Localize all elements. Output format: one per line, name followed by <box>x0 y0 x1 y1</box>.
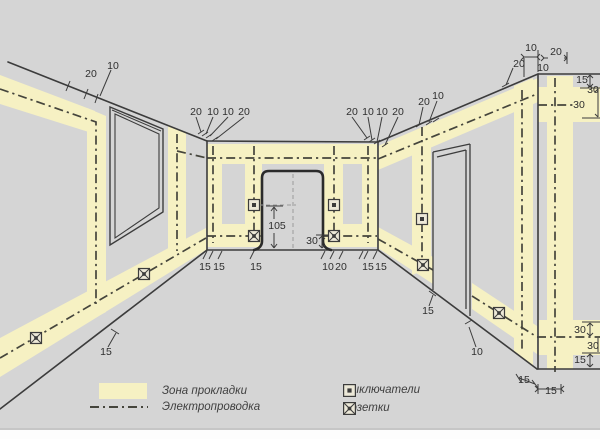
socket-icon <box>418 260 429 271</box>
dimension-label: 10 <box>362 106 374 118</box>
dimension-tick <box>339 251 343 259</box>
dimension-label: 20 <box>238 106 250 118</box>
dimension-tick <box>521 54 524 57</box>
dimension-label: 10 <box>537 62 549 74</box>
dimension-tick <box>218 251 222 259</box>
dimension-label: 10 <box>207 106 219 118</box>
dimension-tick <box>196 117 201 132</box>
dimension-label: 30 <box>573 99 585 111</box>
right-doorway-edge <box>437 150 466 157</box>
socket-icon <box>329 231 340 242</box>
dimension-label: 30 <box>587 84 599 96</box>
switch-icon <box>249 200 260 211</box>
socket-icon <box>139 269 150 280</box>
socket-icon <box>31 333 42 344</box>
socket-icon <box>249 231 260 242</box>
window-frame-outer <box>110 107 163 245</box>
legend-item-sockets: Розетки <box>343 402 390 414</box>
dimension-tick <box>352 117 367 138</box>
wiring-zone <box>362 144 377 247</box>
wiring-zone <box>0 75 95 134</box>
dimension-tick <box>359 251 363 259</box>
dimension-tick <box>541 58 544 61</box>
footer-strip <box>0 428 600 439</box>
dimension-label: 20 <box>85 68 97 80</box>
dimension-tick <box>206 117 213 134</box>
dimension-label: 10 <box>376 106 388 118</box>
dimension-label: 20 <box>418 96 430 108</box>
dimension-tick <box>202 132 208 136</box>
dimension-tick <box>95 94 98 103</box>
dimension-tick <box>250 251 254 259</box>
dimension-label: 15 <box>213 261 225 273</box>
dimension-label: 105 <box>268 220 286 232</box>
dimension-label: 10 <box>432 90 444 102</box>
wiring-zone <box>514 78 533 366</box>
dimension-label: 20 <box>392 106 404 118</box>
legend-zone-label: Зона прокладки <box>162 385 247 397</box>
dimension-label: 15 <box>362 261 374 273</box>
dimension-label: 10 <box>107 60 119 72</box>
diagram-canvas: 2010201010202010102020102010201015303015… <box>0 0 600 439</box>
dimension-tick <box>469 327 476 347</box>
switch-icon <box>329 200 340 211</box>
dimension-label: 30 <box>587 340 599 352</box>
dimension-tick <box>216 117 244 139</box>
dimension-tick <box>330 251 334 259</box>
dimension-tick <box>210 117 228 136</box>
wall-edge <box>207 141 378 142</box>
legend-wiring-label: Электропроводка <box>162 401 260 413</box>
dimension-tick <box>541 55 544 58</box>
dimension-label: 20 <box>190 106 202 118</box>
dimension-label: 10 <box>525 42 537 54</box>
dimension-label: 10 <box>471 346 483 358</box>
dimension-label: 20 <box>346 106 358 118</box>
wiring-zone <box>547 76 573 369</box>
dimension-tick <box>373 251 377 259</box>
dimension-label: 15 <box>375 261 387 273</box>
dimension-label: 30 <box>574 324 586 336</box>
dimension-tick <box>111 329 119 334</box>
dimension-label: 15 <box>100 346 112 358</box>
switch-icon <box>343 384 356 397</box>
switch-icon <box>417 214 428 225</box>
dimension-label: 20 <box>513 58 525 70</box>
dimension-label: 20 <box>550 46 562 58</box>
legend-item-switches: Выключатели <box>343 384 420 396</box>
dimension-label: 15 <box>250 261 262 273</box>
dimension-tick <box>209 251 213 259</box>
dimension-label: 15 <box>422 305 434 317</box>
dimension-tick <box>465 320 472 324</box>
dimension-tick <box>321 251 325 259</box>
dimension-label: 20 <box>335 261 347 273</box>
dash-dot-line-sample <box>90 406 148 408</box>
dimension-label: 15 <box>518 374 530 386</box>
dimension-tick <box>506 68 513 85</box>
wiring-zone <box>207 144 377 164</box>
dimension-label: 10 <box>322 261 334 273</box>
legend-item-zone: Зона прокладки <box>99 383 247 399</box>
socket-icon <box>343 402 356 415</box>
socket-icon <box>494 308 505 319</box>
dimension-label: 30 <box>306 235 318 247</box>
dimension-tick <box>377 117 382 142</box>
electrical-wiring-zones-diagram: 2010201010202010102020102010201015303015… <box>0 0 600 439</box>
dimension-label: 15 <box>545 385 557 397</box>
dimension-tick <box>364 251 368 259</box>
zone-swatch <box>99 383 147 399</box>
dimension-tick <box>532 380 538 388</box>
legend-item-wiring: Электропроводка <box>90 400 260 413</box>
dimension-label: 15 <box>199 261 211 273</box>
dimension-tick <box>364 136 370 140</box>
wall-edge <box>378 250 537 369</box>
dimension-tick <box>100 70 111 96</box>
dimension-label: 10 <box>222 106 234 118</box>
dimension-label: 15 <box>574 354 586 366</box>
wiring-zone <box>207 144 222 247</box>
dimension-tick <box>206 134 212 138</box>
